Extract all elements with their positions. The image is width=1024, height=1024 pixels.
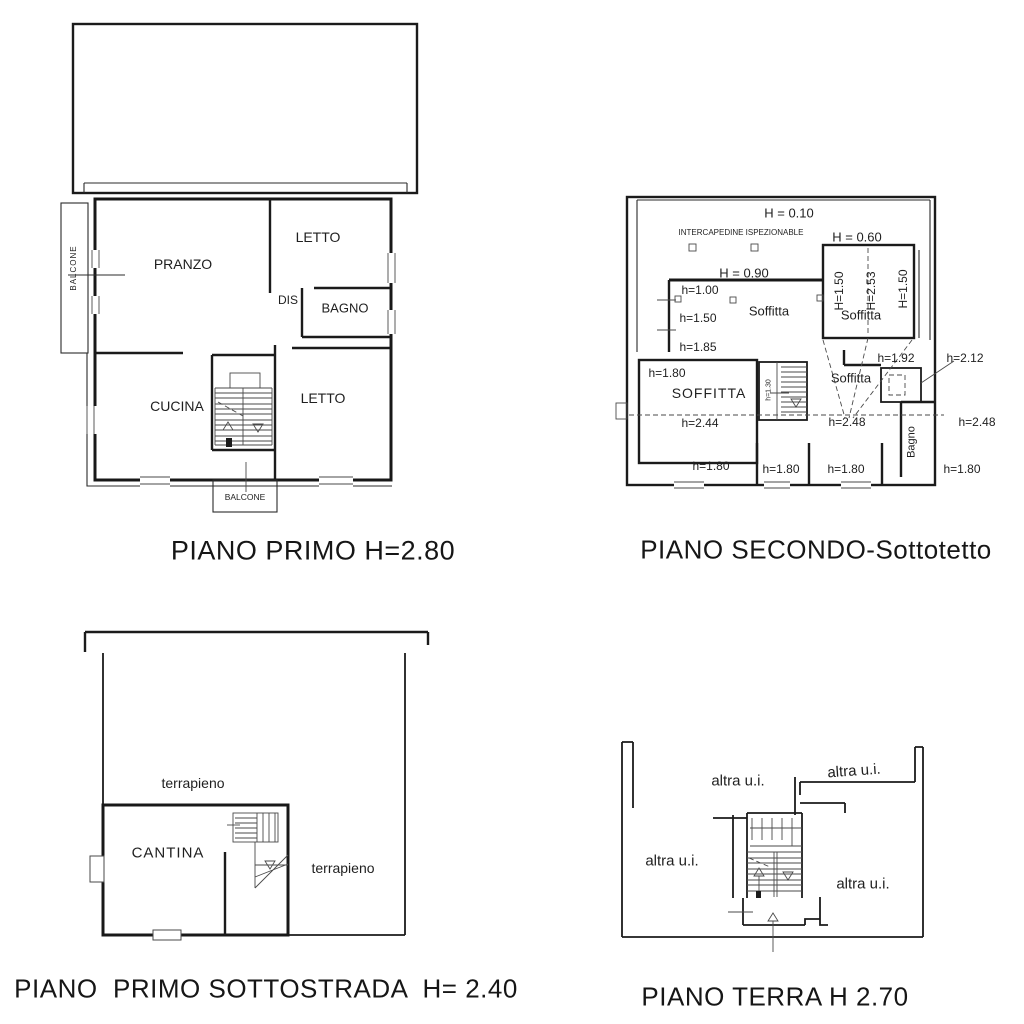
outer-walls (627, 197, 935, 485)
room-label-balcone-bottom: BALCONE (225, 493, 266, 502)
height-label-h185: h=1.85 (679, 341, 716, 353)
balcony-bottom-outline (213, 462, 277, 512)
room-label-cucina: CUCINA (150, 399, 204, 413)
height-label-h248-center: h=2.48 (828, 416, 865, 428)
title-piano-primo: PIANO PRIMO H=2.80 (171, 536, 455, 567)
height-label-h150-vert-right: H=1.50 (897, 269, 909, 308)
height-label-h060: H = 0.60 (832, 231, 882, 244)
room-label-soffitta-topright: Soffitta (841, 309, 881, 322)
height-label-h150: h=1.50 (679, 312, 716, 324)
piano-terra-drawing (610, 725, 950, 965)
height-label-h192: h=1.92 (877, 352, 914, 364)
height-label-h150-vert-left: H=1.50 (833, 271, 845, 310)
note-intercapedine: INTERCAPEDINE ISPEZIONABLE (679, 229, 804, 237)
unit-label-altra-top: altra u.i. (711, 774, 764, 789)
height-label-h010: H = 0.10 (764, 207, 814, 220)
entrance-vestibule (728, 897, 828, 952)
room-label-pranzo: PRANZO (154, 257, 212, 271)
unit-label-altra-left: altra u.i. (645, 854, 698, 869)
room-label-dis: DIS (278, 294, 298, 306)
floorplan-sottostrada: terrapieno CANTINA terrapieno (60, 620, 460, 965)
room-label-letto-bottom: LETTO (301, 391, 346, 405)
title-sottostrada: PIANO PRIMO SOTTOSTRADA H= 2.40 (14, 974, 518, 1005)
outer-walls (85, 632, 428, 935)
height-label-h180-b4: h=1.80 (943, 463, 980, 475)
windows (84, 250, 397, 487)
floorplan-piano-primo: BALCONE PRANZO LETTO DIS BAGNO CUCINA LE… (40, 10, 470, 520)
roof-outline (73, 24, 417, 193)
room-label-bagno-vert: Bagno (907, 426, 918, 458)
title-piano-secondo: PIANO SECONDO-Sottotetto (640, 535, 992, 566)
stairs (747, 813, 802, 898)
height-label-h248-right: h=2.48 (958, 416, 995, 428)
room-label-soffitta-left: SOFFITTA (672, 386, 747, 400)
height-label-h100: h=1.00 (681, 284, 718, 296)
height-label-h180-b1: h=1.80 (692, 460, 729, 472)
room-label-soffitta-center: Soffitta (831, 372, 871, 385)
room-label-soffitta-mid: Soffitta (749, 305, 789, 318)
height-label-h212: h=2.12 (946, 352, 983, 364)
area-label-terrapieno-top: terrapieno (161, 776, 224, 790)
title-piano-terra: PIANO TERRA H 2.70 (641, 982, 908, 1013)
apartment-walls (87, 199, 392, 486)
height-label-h244: h=2.44 (681, 417, 718, 429)
area-label-terrapieno-right: terrapieno (311, 861, 374, 875)
stairs (227, 813, 288, 888)
room-label-balcone-left: BALCONE (70, 245, 78, 290)
height-label-h090: H = 0.90 (719, 267, 769, 280)
floorplan-piano-secondo: H = 0.10 INTERCAPEDINE ISPEZIONABLE H = … (614, 185, 1024, 495)
cantina-walls (103, 805, 288, 935)
height-label-h130-vert: h=1.30 (766, 379, 773, 401)
height-label-h180-b3: h=1.80 (827, 463, 864, 475)
height-label-h180-left: h=1.80 (648, 367, 685, 379)
room-label-letto-top: LETTO (296, 230, 341, 244)
floorplan-piano-terra: altra u.i. altra u.i. altra u.i. altra u… (610, 725, 950, 965)
unit-label-altra-topright: altra u.i. (827, 762, 881, 781)
piano-primo-drawing (40, 10, 470, 520)
room-label-bagno: BAGNO (322, 302, 369, 315)
room-label-cantina: CANTINA (132, 846, 205, 861)
unit-label-altra-right: altra u.i. (836, 877, 889, 892)
height-label-h180-b2: h=1.80 (762, 463, 799, 475)
sottostrada-drawing (60, 620, 460, 965)
stairs (215, 373, 272, 447)
piano-secondo-drawing (614, 185, 1024, 495)
height-label-h253-vert: H=2.53 (865, 271, 877, 310)
